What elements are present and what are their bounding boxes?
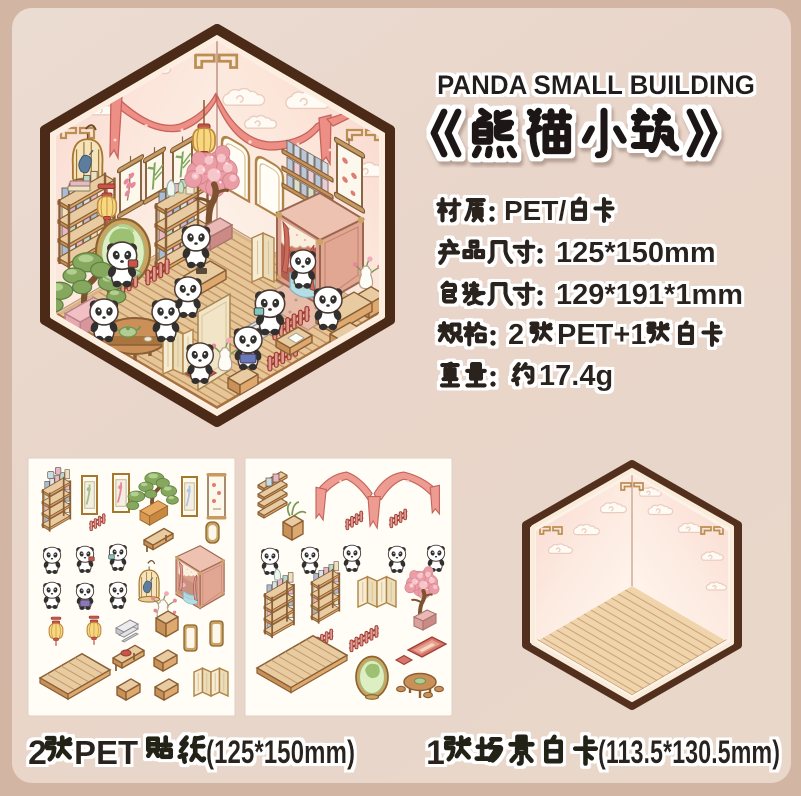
svg-text:2: 2 [508, 319, 524, 351]
svg-text:PANDA SMALL BUILDING: PANDA SMALL BUILDING [437, 70, 755, 100]
svg-text:125*150mm: 125*150mm [556, 237, 716, 269]
svg-text:129*191*1mm: 129*191*1mm [556, 279, 743, 311]
svg-text:PET/: PET/ [504, 195, 566, 226]
svg-text:17.4g: 17.4g [539, 360, 613, 392]
svg-text:2: 2 [28, 734, 47, 772]
svg-text:(125*150mm): (125*150mm) [206, 734, 355, 770]
svg-text:(113.5*130.5mm): (113.5*130.5mm) [598, 734, 780, 770]
svg-text:PET: PET [74, 734, 138, 771]
svg-text:PET+1: PET+1 [557, 319, 646, 351]
svg-text:1: 1 [426, 734, 445, 772]
